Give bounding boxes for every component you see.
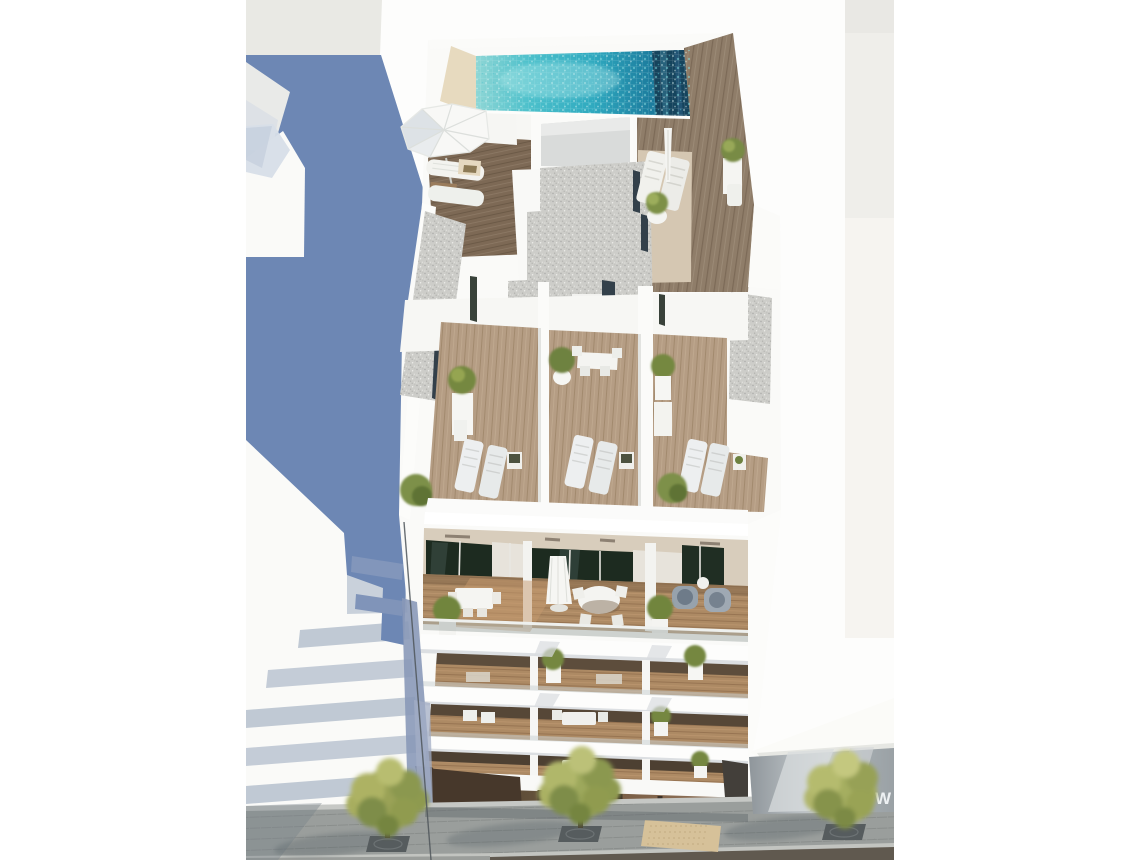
svg-text:W: W: [875, 789, 892, 808]
